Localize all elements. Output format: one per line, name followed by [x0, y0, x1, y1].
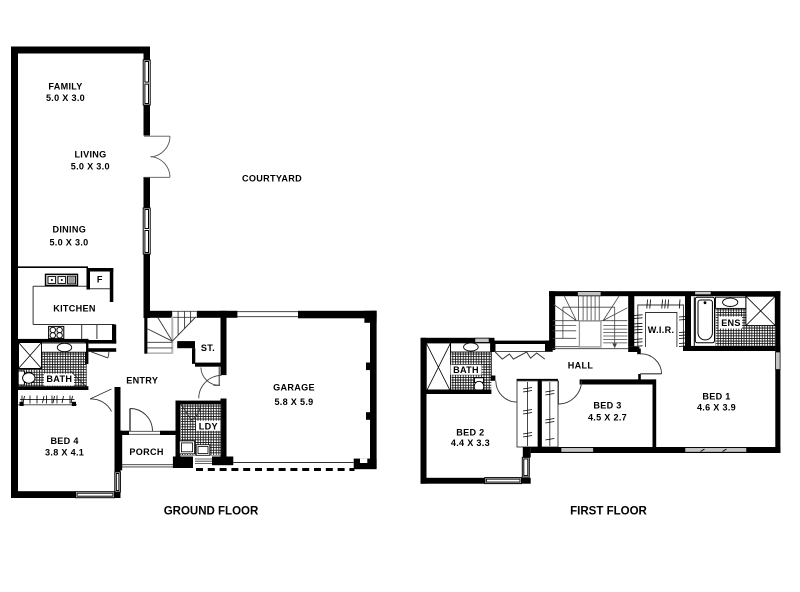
svg-text:ST.: ST. [201, 343, 215, 353]
svg-text:DINING: DINING [52, 224, 86, 234]
svg-text:ENS: ENS [721, 318, 741, 328]
svg-text:ENTRY: ENTRY [126, 376, 158, 386]
svg-text:BED 3: BED 3 [593, 400, 621, 410]
svg-text:HALL: HALL [568, 361, 594, 371]
svg-text:PORCH: PORCH [129, 447, 163, 457]
svg-text:BED 1: BED 1 [702, 392, 730, 402]
svg-text:BATH: BATH [453, 365, 479, 375]
svg-text:4.5 X 2.7: 4.5 X 2.7 [588, 413, 627, 423]
svg-text:KITCHEN: KITCHEN [53, 303, 96, 313]
svg-text:LIVING: LIVING [74, 149, 106, 159]
svg-text:BATH: BATH [46, 374, 72, 384]
svg-text:F: F [97, 275, 103, 285]
svg-text:5.0 X 3.0: 5.0 X 3.0 [49, 237, 88, 247]
svg-text:COURTYARD: COURTYARD [242, 174, 302, 184]
svg-text:BED 2: BED 2 [456, 427, 484, 437]
svg-text:4.4 X 3.3: 4.4 X 3.3 [451, 438, 490, 448]
svg-text:GARAGE: GARAGE [273, 382, 315, 392]
svg-text:LDY: LDY [199, 421, 218, 431]
svg-text:W.I.R.: W.I.R. [648, 325, 675, 335]
svg-text:FIRST FLOOR: FIRST FLOOR [570, 506, 647, 518]
svg-text:4.6 X 3.9: 4.6 X 3.9 [697, 403, 736, 413]
svg-text:5.8 X 5.9: 5.8 X 5.9 [274, 397, 313, 407]
svg-text:GROUND FLOOR: GROUND FLOOR [164, 506, 259, 518]
svg-text:FAMILY: FAMILY [48, 82, 82, 92]
svg-text:BED 4: BED 4 [50, 436, 79, 446]
svg-text:3.8 X 4.1: 3.8 X 4.1 [45, 448, 84, 458]
svg-text:5.0 X 3.0: 5.0 X 3.0 [71, 161, 110, 171]
svg-text:5.0 X 3.0: 5.0 X 3.0 [46, 93, 85, 103]
